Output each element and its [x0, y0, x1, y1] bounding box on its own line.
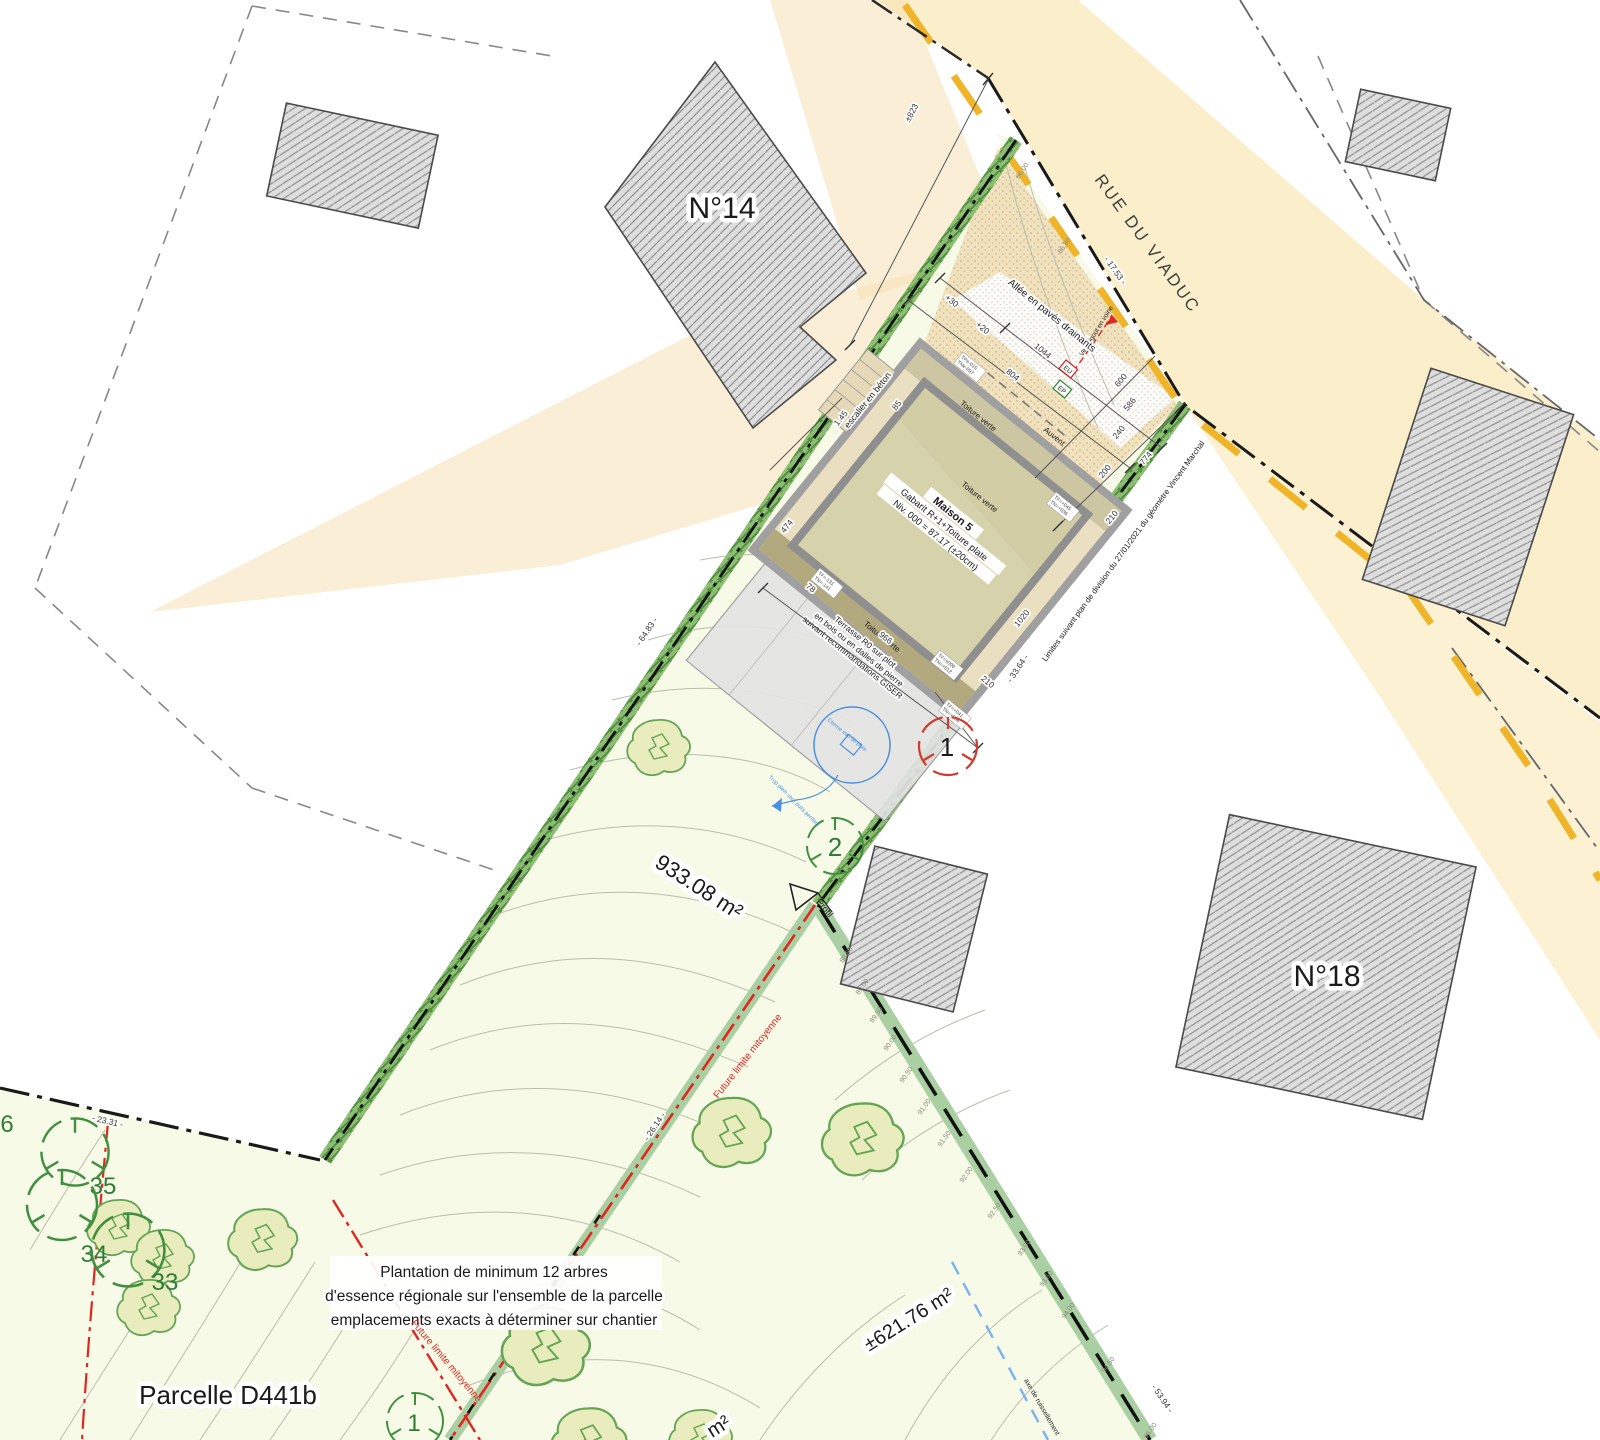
site-plan-svg: Auvent Toiture verte Toiture verte Toitu…: [0, 0, 1600, 1440]
label-n18: N°18: [1293, 960, 1360, 993]
site-plan: Auvent Toiture verte Toiture verte Toitu…: [0, 0, 1600, 1440]
label-parcelle: Parcelle D441b: [139, 1380, 317, 1410]
tree-35-num: 35: [90, 1173, 117, 1200]
plantation-l2: d'essence régionale sur l'ensemble de la…: [325, 1288, 663, 1305]
tree-33-num: 33: [152, 1269, 179, 1296]
plantation-l3: emplacements exacts à déterminer sur cha…: [331, 1312, 658, 1329]
tree-2-num: 2: [828, 832, 842, 862]
plantation-l1: Plantation de minimum 12 arbres: [380, 1264, 608, 1281]
tree-36-num: 6: [0, 1111, 13, 1138]
plantation-note: Plantation de minimum 12 arbres d'essenc…: [325, 1256, 663, 1330]
tree-1-num: 1: [940, 732, 954, 762]
tree-b1-num: 1: [407, 1410, 420, 1437]
label-n14: N°14: [688, 192, 755, 225]
